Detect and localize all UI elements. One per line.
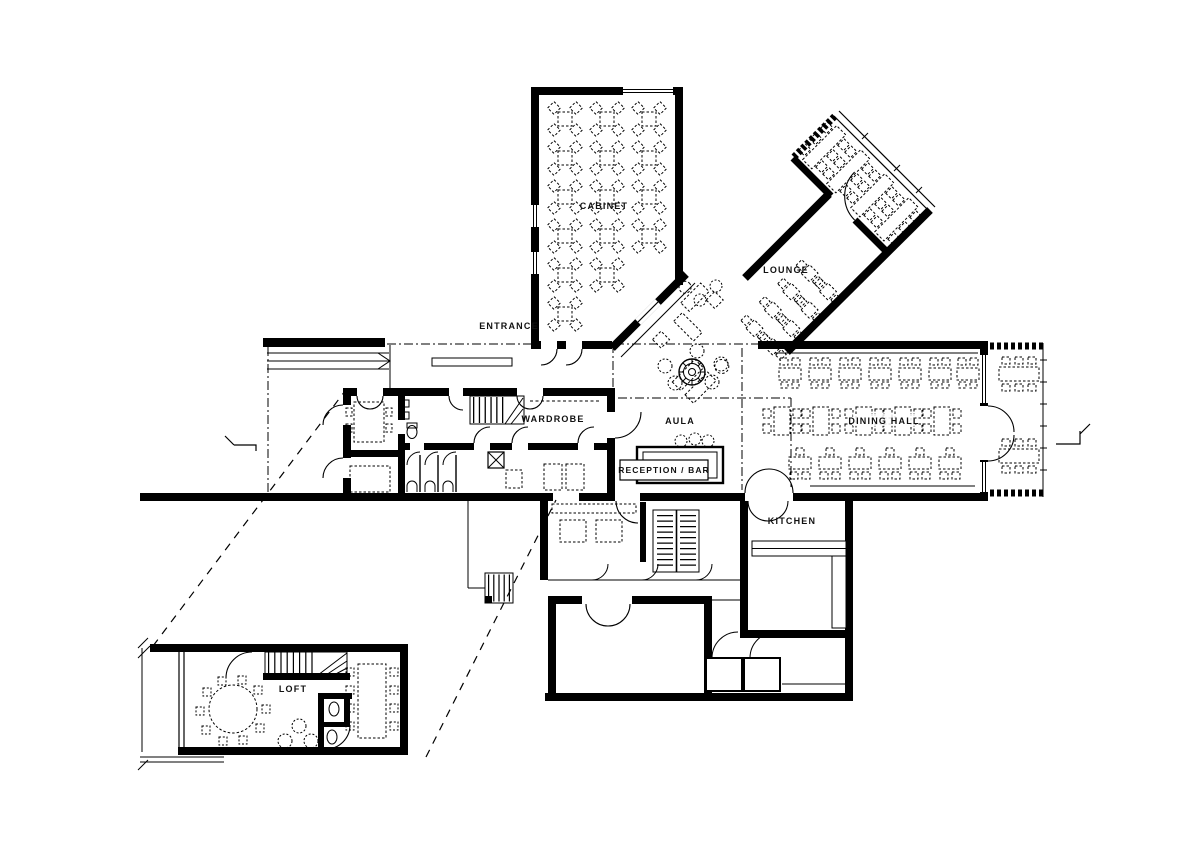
section-marker-left xyxy=(225,436,256,451)
lounge-furniture xyxy=(627,209,843,425)
dining-hall-label: DINING HALL xyxy=(848,416,919,426)
luggage-tables xyxy=(544,464,584,490)
kitchen-counter xyxy=(832,556,846,628)
kitchen-west-wall xyxy=(740,501,748,638)
wing-east-wall xyxy=(607,388,615,497)
exterior-stair xyxy=(468,501,513,603)
reception-bar-label: RECEPTION / BAR xyxy=(618,465,710,475)
loft-round-table xyxy=(196,676,270,745)
canopy-wall xyxy=(263,338,385,347)
main-stairs xyxy=(640,502,699,572)
loft-north-wall xyxy=(150,644,408,652)
loft-stairs xyxy=(263,652,350,680)
cabinet-label: CABINET xyxy=(580,201,628,211)
loft-south-wall xyxy=(178,747,408,755)
loft-east-wall xyxy=(400,644,408,755)
kitchen-label: KITCHEN xyxy=(768,516,816,526)
window xyxy=(623,87,673,95)
door-arc xyxy=(541,349,557,365)
reception-bar: RECEPTION / BAR xyxy=(618,433,723,483)
lounge-wing: LOUNGE xyxy=(627,111,935,425)
office-counter xyxy=(552,504,636,513)
wing-north-wall xyxy=(343,388,613,396)
armchair xyxy=(506,470,522,488)
cold-rooms xyxy=(706,632,845,691)
loft-inset: LOFT xyxy=(138,638,408,770)
door-arc xyxy=(988,406,1014,432)
cabinet-east-wall xyxy=(675,87,683,285)
meeting-room-table xyxy=(346,402,392,492)
door-arc xyxy=(988,435,1014,461)
window-hatch-wall xyxy=(794,115,836,157)
pouf xyxy=(694,294,706,306)
kitchen-south-wall xyxy=(740,630,845,638)
loft-long-table xyxy=(346,664,398,738)
door-arc xyxy=(226,652,252,678)
window xyxy=(531,205,539,227)
entrance-bench xyxy=(432,358,512,366)
floor-plan-page: CABINET xyxy=(0,0,1200,848)
loft-poufs xyxy=(278,719,318,748)
floor-plan-svg: CABINET xyxy=(0,0,1200,848)
window xyxy=(531,252,539,274)
lounge-label: LOUNGE xyxy=(763,265,809,275)
banquet-partition-wall xyxy=(793,158,831,196)
glazed-end-wall xyxy=(834,116,930,212)
terrace-table xyxy=(999,357,1039,391)
kitchen: KITCHEN xyxy=(706,493,853,701)
south-wall xyxy=(140,469,988,523)
window xyxy=(980,462,988,492)
door-arc xyxy=(566,349,582,365)
aula-label: AULA xyxy=(665,416,695,426)
bar-stools xyxy=(675,433,714,447)
block-south-wall xyxy=(545,693,852,701)
wardrobe-stair xyxy=(470,396,524,424)
fireplace xyxy=(679,359,705,385)
pouf xyxy=(710,280,722,292)
entrance-label: ENTRANCE xyxy=(479,321,539,331)
door-arc xyxy=(831,172,879,220)
glazing-line xyxy=(621,283,695,357)
terrace-table xyxy=(999,439,1039,473)
cabinet-room: CABINET xyxy=(531,87,695,365)
west-wing: WARDROBE xyxy=(323,388,641,497)
dining-north-wall xyxy=(758,341,988,349)
window xyxy=(980,355,988,403)
loft-bathroom xyxy=(318,693,352,749)
big-room xyxy=(548,596,712,701)
wing-corridor-wall xyxy=(398,443,607,450)
dining-hall: DINING HALL xyxy=(758,341,1014,501)
wardrobe-label: WARDROBE xyxy=(521,414,584,424)
fireplace-stools xyxy=(658,344,728,390)
cabinet-tables xyxy=(548,102,667,332)
terrace xyxy=(990,343,1047,497)
section-marker-right xyxy=(1056,424,1090,444)
office-tables xyxy=(560,520,622,542)
loft-label: LOFT xyxy=(279,684,307,694)
